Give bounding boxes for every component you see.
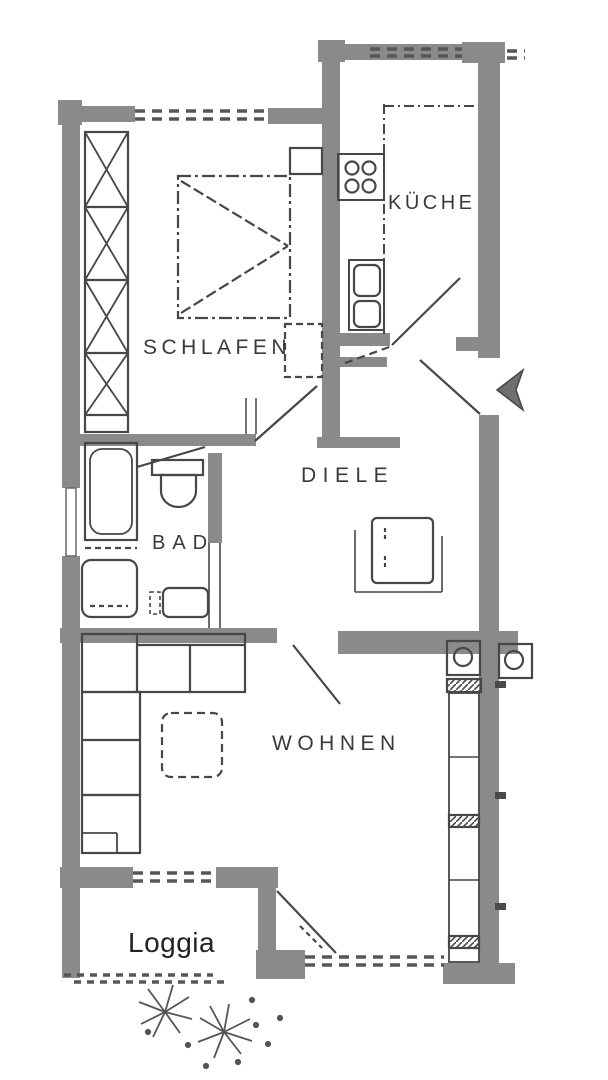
- bath-door-swing: [137, 447, 205, 467]
- kitchen-door-swing: [392, 278, 460, 345]
- wall-kitchen-right: [478, 44, 500, 358]
- nightstand: [290, 148, 322, 174]
- double-sink-icon: [349, 260, 384, 330]
- wall-outer-right: [479, 415, 499, 984]
- entrance-arrow-icon: [497, 370, 523, 410]
- room-label-bathroom: BAD: [152, 532, 214, 554]
- sofa: [82, 634, 245, 853]
- floor-plan-page: SCHLAFEN KÜCHE DIELE BAD WOHNEN Loggia: [0, 0, 608, 1080]
- wardrobe-x-marks: [85, 132, 128, 415]
- kitchen-counter: [384, 104, 476, 336]
- bidet-icon: [82, 560, 137, 617]
- loggia-door-dash: [300, 926, 322, 948]
- wall-loggia-right: [258, 888, 276, 955]
- toilet-icon: [152, 460, 203, 507]
- shelf-unit: [447, 679, 481, 962]
- entrance-door-swing: [420, 360, 480, 414]
- bath-window: [62, 488, 80, 556]
- window-bands: [64, 49, 525, 982]
- wall-right-foot: [443, 963, 515, 984]
- wall-bath-right: [208, 453, 222, 543]
- bedroom-window: [135, 111, 268, 119]
- stove-burners-icon: [338, 154, 384, 200]
- wall-entrance-door-frame: [456, 337, 478, 351]
- wall-bedroom-top-right: [268, 108, 326, 124]
- living-loggia-window: [133, 873, 216, 881]
- neighbor-wall-dashes: [507, 51, 525, 58]
- room-label-kitchen: KÜCHE: [388, 192, 476, 214]
- coffee-table: [162, 713, 222, 777]
- bed: [178, 176, 290, 318]
- fixtures: [82, 104, 532, 962]
- wall-kitchen-left: [322, 42, 340, 448]
- bedroom-door-jamb: [246, 398, 256, 434]
- bath-wall-thin: [209, 543, 220, 628]
- hall-cabinet: [355, 518, 442, 592]
- wall-loggia-top-left: [60, 867, 133, 888]
- room-label-bedroom: SCHLAFEN: [143, 336, 291, 359]
- wall-loggia-top-right: [216, 867, 278, 888]
- room-label-living: WOHNEN: [272, 732, 401, 755]
- loggia-edge-dashes: [64, 975, 230, 982]
- bathtub-icon: [85, 443, 137, 540]
- room-label-hallway: DIELE: [301, 464, 394, 487]
- wall-bath-top: [62, 434, 256, 446]
- living-south-window: [305, 957, 444, 965]
- room-label-loggia: Loggia: [128, 927, 215, 958]
- floor-plan-drawing: SCHLAFEN KÜCHE DIELE BAD WOHNEN Loggia: [0, 0, 608, 1080]
- living-door-swing: [293, 645, 340, 704]
- wall-hall-stub: [317, 437, 400, 448]
- wall-loggia-corner-block: [256, 950, 305, 979]
- wall-kitchen-bottom-stub: [340, 333, 390, 346]
- washbasin-icon: [150, 588, 208, 617]
- loggia-door-swing: [277, 891, 336, 953]
- shrub-sketch-icon: [139, 985, 282, 1068]
- bedroom-door-swing: [255, 386, 317, 441]
- room-labels: SCHLAFEN KÜCHE DIELE BAD WOHNEN Loggia: [128, 192, 476, 958]
- wardrobe: [85, 132, 128, 432]
